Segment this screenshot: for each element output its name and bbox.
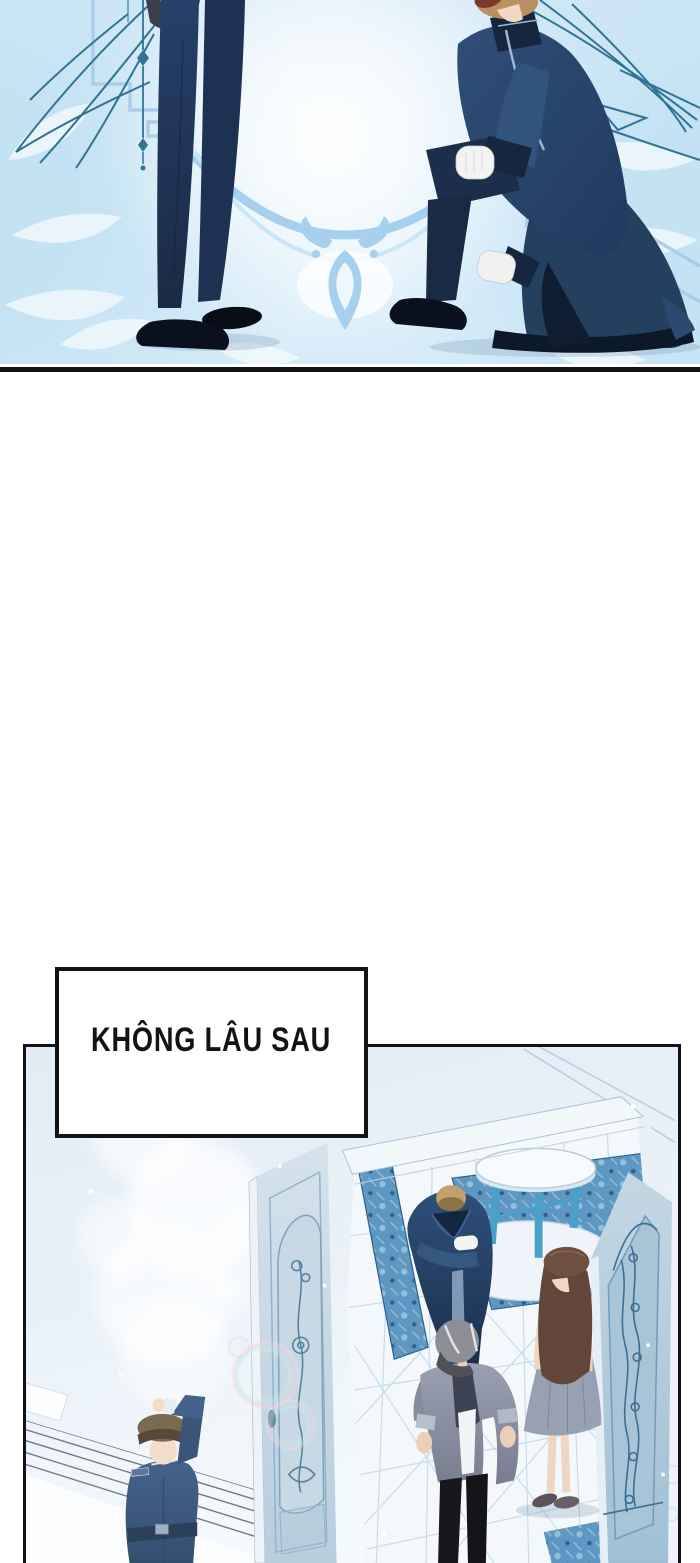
panel-kneeling-scene — [0, 0, 700, 364]
kneeling-scene-art — [0, 0, 700, 364]
white-step — [26, 1383, 68, 1421]
panel-divider-line — [0, 367, 700, 372]
glove-on-knee — [456, 146, 494, 179]
guard-hand — [152, 1398, 164, 1412]
guard-buckle — [155, 1524, 168, 1534]
kneeling-figure — [390, 0, 700, 357]
gray-man-pants — [438, 1477, 462, 1563]
standing-figure — [136, 0, 280, 351]
caption-text: KHÔNG LÂU SAU — [91, 1021, 331, 1060]
gray-man-hand — [500, 1426, 516, 1448]
shin — [426, 195, 472, 302]
front-leg — [157, 0, 199, 308]
gray-man-hand — [416, 1432, 432, 1454]
gray-man-pants — [466, 1474, 488, 1563]
caption-box: KHÔNG LÂU SAU — [55, 967, 368, 1138]
webtoon-page: KHÔNG LÂU SAU — [0, 0, 700, 1563]
back-leg — [198, 0, 245, 302]
guard-epaulet — [131, 1468, 149, 1477]
kneeling-shoe — [390, 298, 467, 330]
saluting-guard — [126, 1395, 206, 1563]
guard-cuff — [162, 1398, 176, 1414]
